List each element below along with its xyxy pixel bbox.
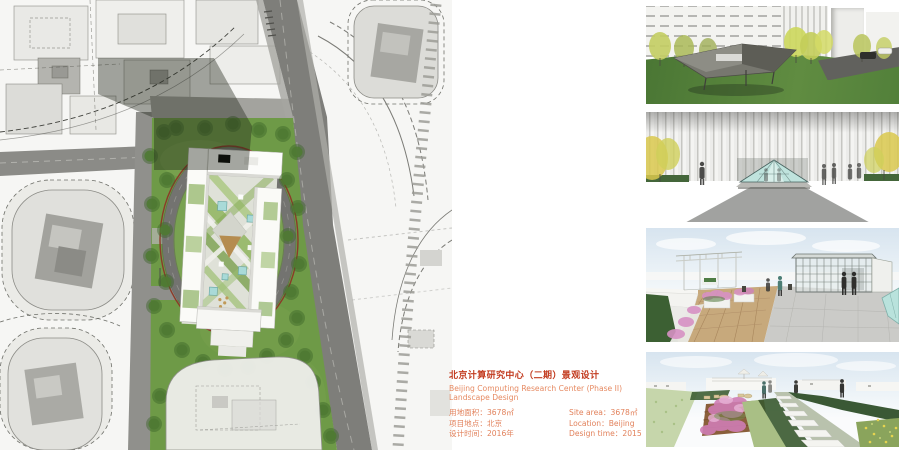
detail-design-time-en: Design time：2015 bbox=[569, 429, 642, 440]
dark-car bbox=[860, 52, 876, 59]
render-pyramid-plaza bbox=[646, 112, 899, 222]
detail-design-time-cn: 设计时间：2016年 bbox=[449, 429, 557, 440]
site-plan bbox=[0, 0, 452, 450]
render-entry-canopy bbox=[646, 6, 899, 104]
render-roof-terrace bbox=[646, 228, 899, 342]
white-car bbox=[878, 48, 892, 54]
glass-pavilion bbox=[792, 254, 876, 292]
project-title-cn: 北京计算研究中心（二期）景观设计 bbox=[449, 368, 657, 381]
project-info: 北京计算研究中心（二期）景观设计 Beijing Computing Resea… bbox=[449, 368, 657, 440]
glass-pyramid bbox=[736, 160, 812, 189]
project-details: 用地面积：3678㎡ 项目地点：北京 设计时间：2016年 Site area：… bbox=[449, 408, 657, 440]
detail-site-area-cn: 用地面积：3678㎡ bbox=[449, 408, 557, 419]
detail-site-area-en: Site area：3678㎡ bbox=[569, 408, 642, 419]
presentation-board: 北京计算研究中心（二期）景观设计 Beijing Computing Resea… bbox=[0, 0, 900, 450]
render-roof-garden bbox=[646, 352, 899, 447]
detail-location-en: Location：Beijing bbox=[569, 419, 642, 430]
project-title-en: Beijing Computing Research Center (Phase… bbox=[449, 384, 657, 402]
detail-location-cn: 项目地点：北京 bbox=[449, 419, 557, 430]
